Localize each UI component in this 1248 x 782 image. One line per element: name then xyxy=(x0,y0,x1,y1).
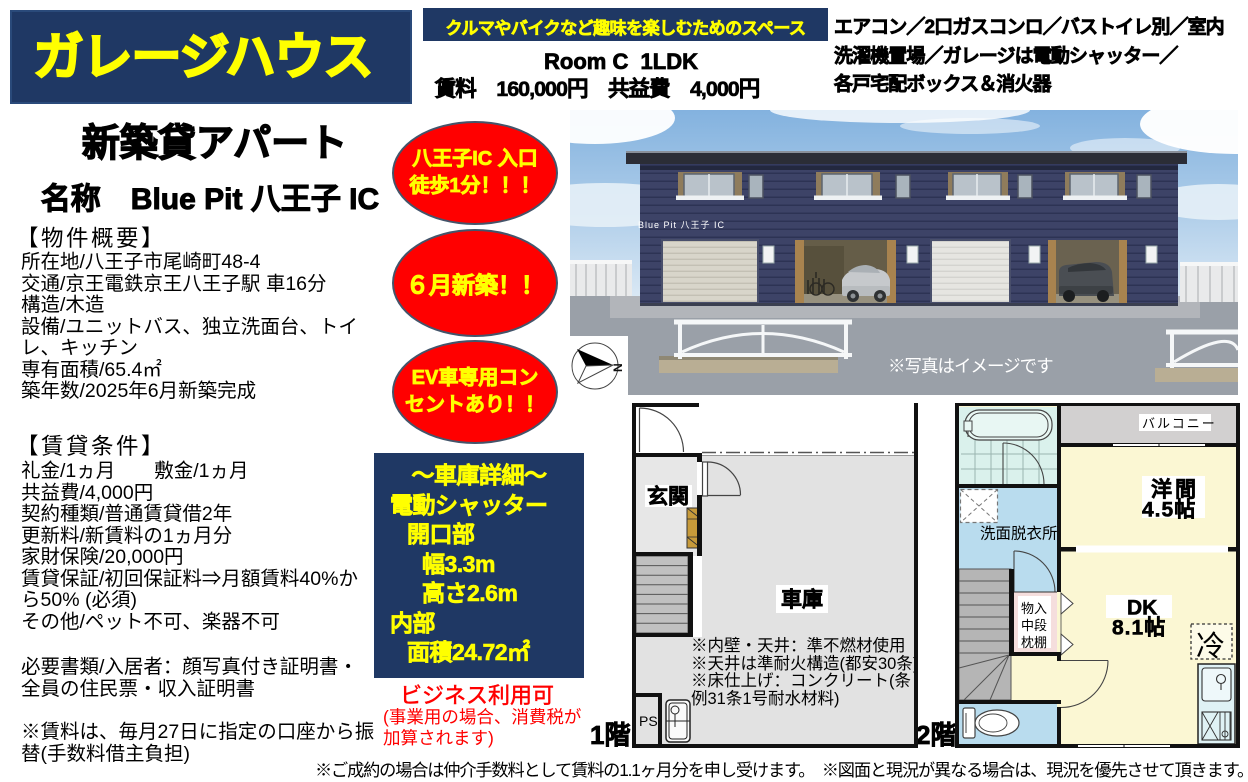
svg-text:物入: 物入 xyxy=(1021,601,1047,616)
svg-text:玄関: 玄関 xyxy=(647,485,689,509)
svg-text:8.1帖: 8.1帖 xyxy=(1112,617,1166,640)
svg-text:N: N xyxy=(611,363,625,372)
svg-text:※内壁・天井：準不燃材使用: ※内壁・天井：準不燃材使用 xyxy=(691,636,906,655)
svg-text:中段: 中段 xyxy=(1021,618,1047,633)
svg-text:枕棚: 枕棚 xyxy=(1021,635,1047,650)
svg-text:※床仕上げ：コンクリート(条: ※床仕上げ：コンクリート(条 xyxy=(691,671,911,690)
svg-text:例31条1号耐水材料): 例31条1号耐水材料) xyxy=(691,689,840,708)
svg-text:4.5帖: 4.5帖 xyxy=(1142,499,1196,522)
svg-text:Blue Pit 八王子 IC: Blue Pit 八王子 IC xyxy=(638,220,725,230)
svg-text:※天井は準耐火構造(都安30条): ※天井は準耐火構造(都安30条) xyxy=(691,654,918,673)
svg-text:車庫: 車庫 xyxy=(781,588,823,612)
svg-text:洗面脱衣所: 洗面脱衣所 xyxy=(980,525,1058,543)
svg-text:バルコニー: バルコニー xyxy=(1142,416,1217,431)
svg-text:※写真はイメージです: ※写真はイメージです xyxy=(888,356,1053,376)
svg-text:PS: PS xyxy=(639,713,658,729)
svg-text:冷: 冷 xyxy=(1196,630,1225,663)
